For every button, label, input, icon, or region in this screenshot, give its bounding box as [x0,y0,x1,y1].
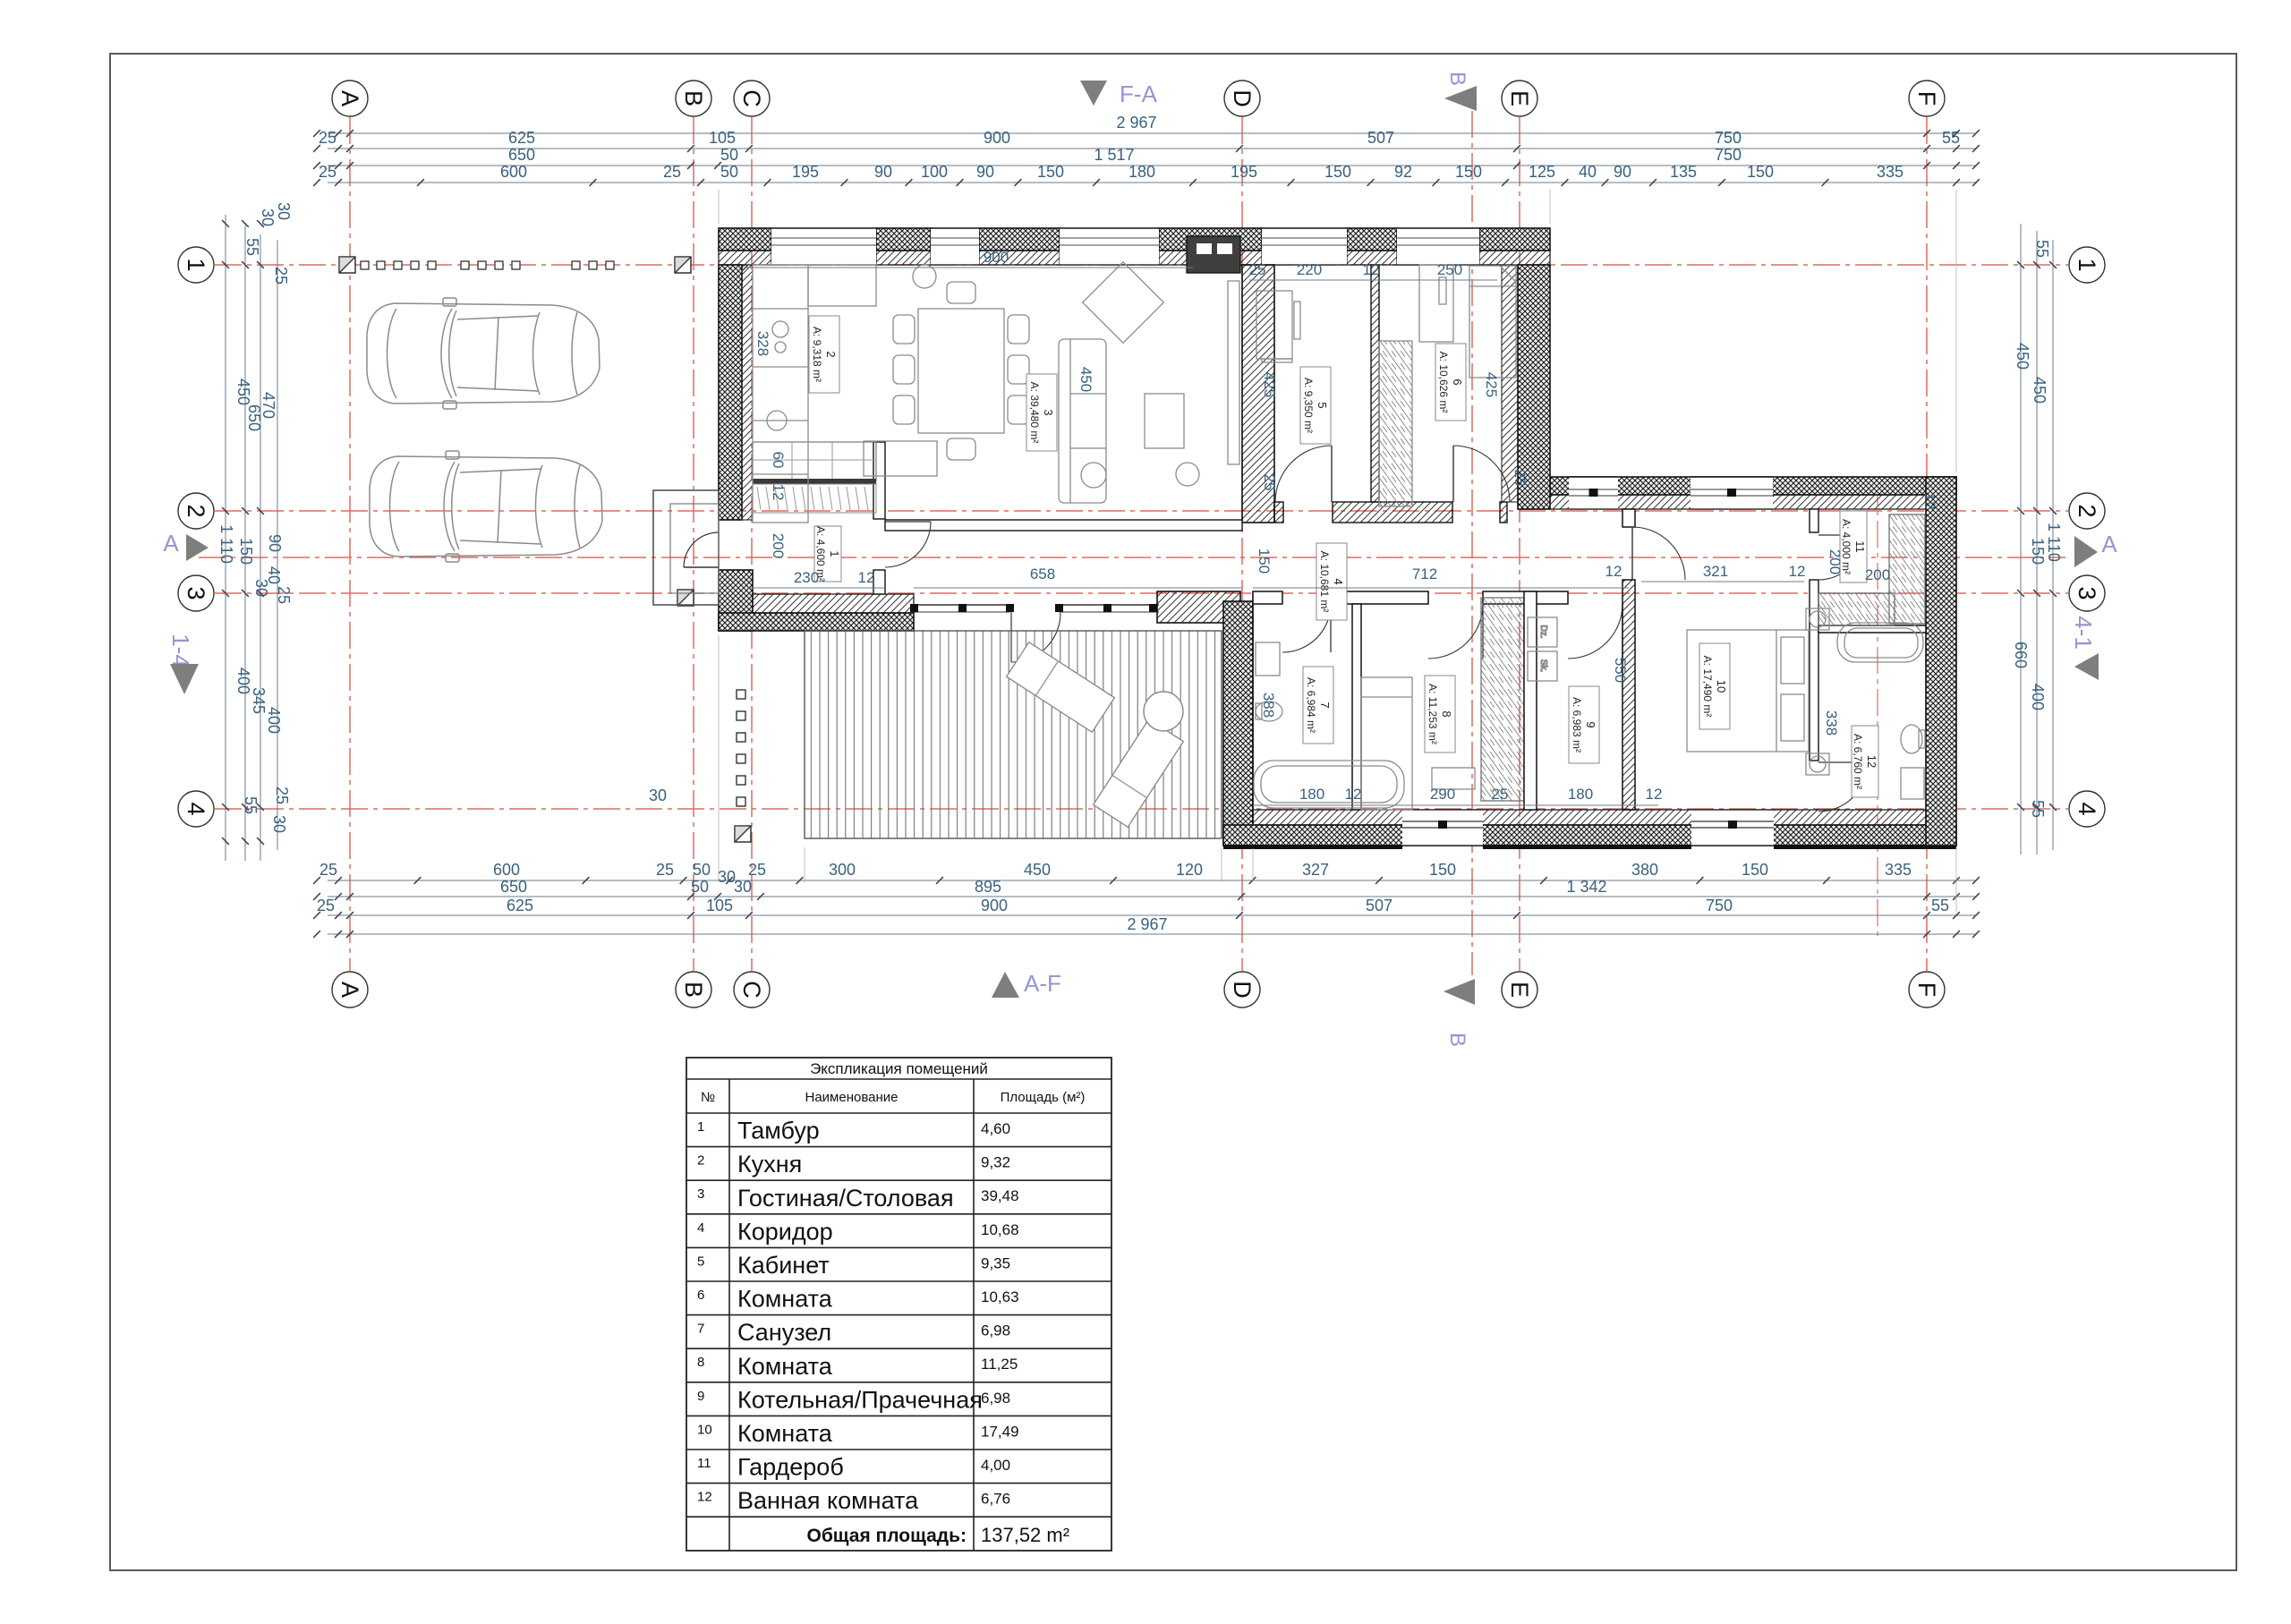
svg-text:200: 200 [1827,549,1844,574]
svg-text:150: 150 [1429,861,1456,879]
svg-text:30: 30 [270,815,288,833]
svg-text:9: 9 [1584,721,1597,727]
svg-text:335: 335 [1885,861,1912,879]
svg-text:321: 321 [1703,563,1728,580]
svg-text:895: 895 [975,878,1001,896]
svg-text:650: 650 [245,404,263,431]
svg-text:425: 425 [1483,372,1500,397]
svg-text:50: 50 [720,146,738,164]
svg-text:450: 450 [1024,861,1051,879]
svg-text:4: 4 [1332,578,1345,584]
svg-text:195: 195 [792,163,819,181]
svg-text:30: 30 [734,878,752,896]
svg-text:3: 3 [1042,409,1055,415]
svg-text:328: 328 [754,331,771,356]
svg-text:900: 900 [981,897,1008,914]
svg-text:25: 25 [1249,261,1266,278]
svg-text:D: D [1229,981,1256,999]
svg-text:55: 55 [2033,240,2051,258]
svg-text:625: 625 [508,129,535,147]
svg-text:625: 625 [507,897,533,914]
svg-text:400: 400 [2029,684,2047,710]
svg-text:450: 450 [1077,367,1094,392]
svg-text:5: 5 [1316,402,1329,408]
svg-text:507: 507 [1367,129,1394,147]
svg-text:25: 25 [1261,474,1278,491]
svg-text:6: 6 [1451,378,1464,385]
svg-text:30: 30 [275,202,293,220]
svg-text:B: B [1445,1033,1469,1047]
svg-text:660: 660 [2012,642,2030,668]
svg-text:180: 180 [1299,786,1324,803]
svg-text:658: 658 [1030,565,1055,582]
svg-text:150: 150 [2029,538,2047,565]
svg-text:Кабинет: Кабинет [737,1252,830,1279]
svg-text:A-F: A-F [1024,970,1061,997]
svg-text:4: 4 [183,802,209,815]
svg-text:25: 25 [748,861,766,879]
svg-text:11: 11 [697,1456,711,1471]
svg-text:Площадь (м²): Площадь (м²) [1001,1090,1086,1105]
svg-text:150: 150 [1455,163,1482,181]
svg-text:105: 105 [706,897,733,914]
svg-text:450: 450 [2014,343,2031,370]
svg-text:150: 150 [1747,163,1774,181]
svg-text:Кухня: Кухня [737,1151,802,1178]
svg-text:8: 8 [1440,710,1453,717]
svg-text:4: 4 [697,1220,704,1236]
svg-text:135: 135 [1670,163,1697,181]
svg-text:B: B [680,90,707,106]
svg-text:A: 39,480 m²: A: 39,480 m² [1028,382,1041,444]
svg-text:6,76: 6,76 [981,1491,1010,1508]
svg-text:A: A [336,982,363,998]
svg-text:195: 195 [1231,163,1257,181]
svg-text:200: 200 [770,533,787,558]
svg-text:12: 12 [697,1490,712,1505]
svg-text:B: B [680,982,707,998]
svg-text:125: 125 [1529,163,1555,181]
svg-text:A: A [2101,531,2117,557]
svg-text:30: 30 [649,786,667,804]
svg-text:25: 25 [663,163,681,181]
svg-text:750: 750 [1706,897,1733,914]
svg-text:7: 7 [697,1322,704,1337]
svg-text:450: 450 [2031,377,2048,404]
svg-text:507: 507 [1366,897,1392,914]
svg-text:750: 750 [1715,129,1742,147]
svg-text:Тамбур: Тамбур [737,1118,820,1144]
svg-text:A: A [336,90,363,106]
svg-text:3: 3 [697,1186,704,1202]
svg-text:12: 12 [770,484,787,501]
svg-text:17,49: 17,49 [981,1423,1019,1440]
svg-text:150: 150 [1037,163,1064,181]
svg-text:1-4: 1-4 [167,633,194,667]
svg-text:2: 2 [824,351,838,357]
svg-text:C: C [738,981,765,999]
svg-text:11,25: 11,25 [981,1356,1018,1373]
svg-text:90: 90 [1614,163,1631,181]
svg-text:55: 55 [243,238,261,256]
svg-text:10: 10 [697,1422,712,1437]
svg-text:25: 25 [319,163,336,181]
svg-text:1: 1 [183,258,209,271]
svg-text:150: 150 [1742,861,1768,879]
svg-text:F: F [1913,91,1940,106]
svg-text:400: 400 [265,707,283,734]
svg-text:4-1: 4-1 [2070,616,2097,650]
svg-text:120: 120 [1176,861,1203,879]
svg-text:6,98: 6,98 [981,1390,1010,1407]
svg-text:600: 600 [493,861,520,879]
svg-text:Комната: Комната [737,1286,833,1313]
svg-text:105: 105 [709,129,736,147]
svg-text:2: 2 [183,504,209,517]
svg-text:12: 12 [1363,261,1380,278]
svg-text:1 342: 1 342 [1566,878,1606,896]
svg-text:180: 180 [1128,163,1155,181]
svg-text:25: 25 [275,586,293,604]
svg-text:712: 712 [1412,565,1437,582]
svg-text:6: 6 [697,1288,704,1303]
svg-text:2: 2 [697,1153,704,1169]
svg-text:39,48: 39,48 [981,1187,1019,1204]
svg-text:3: 3 [183,586,209,599]
svg-text:2 967: 2 967 [1116,114,1156,132]
svg-text:25: 25 [319,861,337,879]
svg-text:A: 9,350 m²: A: 9,350 m² [1302,378,1315,433]
svg-text:12: 12 [1865,755,1878,768]
svg-text:10: 10 [1715,680,1728,693]
svg-text:E: E [1506,982,1533,998]
svg-text:Гардероб: Гардероб [737,1454,844,1481]
svg-text:338: 338 [1823,710,1840,735]
svg-text:Экспликация помещений: Экспликация помещений [810,1060,988,1077]
svg-text:1: 1 [697,1119,704,1135]
svg-text:290: 290 [1430,786,1455,803]
svg-text:650: 650 [508,146,535,164]
svg-text:Коридор: Коридор [737,1218,833,1245]
svg-text:55: 55 [1931,897,1949,914]
svg-text:300: 300 [829,861,856,879]
svg-text:400: 400 [234,667,252,694]
svg-text:25: 25 [1492,786,1509,803]
svg-text:12: 12 [1921,493,1938,510]
svg-text:Гостиная/Столовая: Гостиная/Столовая [737,1185,954,1212]
svg-text:A: 9,318 m²: A: 9,318 m² [811,327,823,382]
svg-text:50: 50 [693,861,711,879]
svg-text:11: 11 [1853,540,1867,553]
svg-text:4: 4 [2074,802,2100,815]
svg-text:5: 5 [697,1254,704,1269]
svg-text:327: 327 [1302,861,1329,879]
svg-text:A: 17,490 m²: A: 17,490 m² [1701,656,1714,718]
svg-text:25: 25 [656,861,674,879]
svg-text:230: 230 [794,569,819,586]
svg-text:A: 11,253 m²: A: 11,253 m² [1427,684,1439,744]
svg-text:2 967: 2 967 [1127,915,1167,933]
svg-text:3: 3 [2074,586,2100,599]
svg-text:25: 25 [272,267,290,285]
svg-text:12: 12 [1646,786,1663,803]
svg-text:10,68: 10,68 [981,1221,1019,1238]
svg-text:1 517: 1 517 [1094,146,1134,164]
svg-text:F-A: F-A [1120,81,1158,107]
svg-text:Комната: Комната [737,1420,833,1447]
svg-text:425: 425 [1261,372,1278,397]
svg-text:100: 100 [921,163,948,181]
svg-text:Комната: Комната [737,1353,833,1380]
svg-text:90: 90 [874,163,892,181]
svg-text:550: 550 [1612,658,1629,683]
svg-text:900: 900 [984,249,1009,266]
svg-text:12: 12 [1605,563,1622,580]
svg-text:335: 335 [1877,163,1903,181]
svg-text:60: 60 [770,452,787,469]
svg-text:388: 388 [1260,693,1277,718]
svg-text:Dz.: Dz. [1538,625,1548,639]
svg-text:A: 6,760 m²: A: 6,760 m² [1852,734,1864,789]
svg-text:A: 6,983 m²: A: 6,983 m² [1571,697,1583,752]
svg-text:650: 650 [500,878,527,896]
svg-text:D: D [1229,89,1256,107]
svg-text:1 110: 1 110 [217,524,235,564]
svg-text:40: 40 [1579,163,1597,181]
svg-text:Общая площадь:: Общая площадь: [806,1526,967,1546]
svg-text:8: 8 [697,1355,704,1370]
svg-text:92: 92 [1394,163,1412,181]
svg-text:E: E [1506,90,1533,106]
svg-text:9,32: 9,32 [981,1154,1010,1171]
svg-text:4,60: 4,60 [981,1120,1010,1137]
svg-text:345: 345 [250,687,268,714]
svg-text:№: № [701,1090,715,1105]
svg-text:150: 150 [237,538,255,565]
svg-text:150: 150 [1256,548,1273,574]
svg-text:Санузел: Санузел [737,1319,831,1346]
svg-text:1: 1 [2074,258,2100,271]
svg-text:50: 50 [720,163,738,181]
svg-text:200: 200 [1865,566,1890,583]
svg-text:1: 1 [828,550,841,557]
svg-text:10,63: 10,63 [981,1288,1019,1305]
svg-text:450: 450 [234,378,252,405]
svg-text:A: 6,984 m²: A: 6,984 m² [1305,677,1317,733]
svg-text:90: 90 [266,534,284,552]
svg-text:25: 25 [319,129,336,147]
svg-text:9,35: 9,35 [981,1254,1010,1271]
svg-text:A: 10,681 m²: A: 10,681 m² [1318,551,1331,613]
svg-text:7: 7 [1318,701,1332,708]
svg-text:220: 220 [1297,261,1322,278]
svg-text:Котельная/Прачечная: Котельная/Прачечная [737,1386,983,1413]
svg-text:9: 9 [697,1389,704,1404]
svg-text:Наименование: Наименование [805,1090,899,1105]
svg-text:Ванная комната: Ванная комната [737,1487,919,1514]
svg-text:Sk.: Sk. [1538,659,1548,672]
svg-text:C: C [738,89,765,107]
svg-text:6,98: 6,98 [981,1322,1010,1339]
svg-text:750: 750 [1715,146,1742,164]
svg-text:900: 900 [984,129,1010,147]
svg-text:12: 12 [1345,786,1362,803]
svg-text:1 110: 1 110 [2045,523,2063,562]
svg-text:B: B [1445,72,1469,86]
svg-text:90: 90 [976,163,994,181]
svg-text:600: 600 [500,163,527,181]
svg-text:A: A [163,530,179,557]
svg-text:150: 150 [1324,163,1351,181]
svg-text:F: F [1913,982,1940,998]
svg-text:A: 10,626 m²: A: 10,626 m² [1437,352,1450,413]
svg-text:12: 12 [858,569,875,586]
svg-text:4,00: 4,00 [981,1457,1010,1474]
svg-text:137,52 m²: 137,52 m² [981,1524,1069,1546]
svg-text:250: 250 [1437,261,1462,278]
svg-text:2: 2 [2074,504,2100,517]
svg-text:25: 25 [1512,470,1529,487]
svg-text:12: 12 [1789,563,1806,580]
svg-text:180: 180 [1568,786,1593,803]
svg-text:25: 25 [273,786,291,804]
svg-text:380: 380 [1631,861,1658,879]
